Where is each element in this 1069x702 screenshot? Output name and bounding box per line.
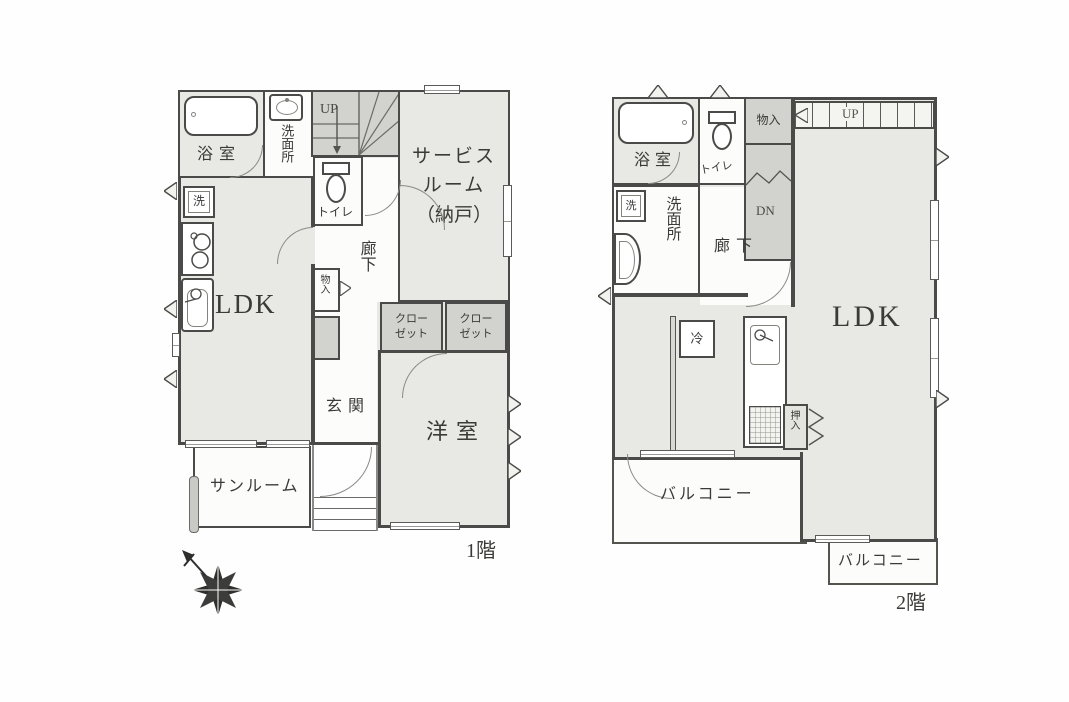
stove-2f <box>749 406 781 444</box>
vent-triangle-right-2f-1 <box>936 148 949 166</box>
fridge-label: 冷 <box>690 332 703 346</box>
fridge: 冷 <box>679 320 715 358</box>
washer-2f: 洗 <box>616 190 646 222</box>
bifold-door-icon <box>808 408 825 446</box>
window-right-2f-1 <box>930 200 939 280</box>
balcony-sub-label: バルコニー <box>838 553 923 570</box>
window-balcony-wall <box>640 450 735 458</box>
window-ldk-bottom-2f <box>815 535 870 543</box>
balcony-main-label: バルコニー <box>660 486 755 504</box>
washroom-label-2f: 洗面所 <box>664 196 681 241</box>
floor-plan-2f: トイレ 物入 DN UP 洗 冷 <box>0 0 1069 702</box>
hallway-label-2f: 廊下 <box>714 238 758 256</box>
storage-label-2f: 物入 <box>756 114 780 127</box>
floor2-label: 2階 <box>896 592 926 614</box>
futon-closet-label: 押入 <box>788 410 799 430</box>
kitchen-area-top-wall <box>612 293 748 297</box>
vent-triangle-top-2 <box>710 85 730 98</box>
storage-2f: 物入 <box>744 97 793 145</box>
stairs-up-arrow-2f <box>795 108 808 123</box>
vent-triangle-top-1 <box>648 85 668 98</box>
stairs-up-label-2f: UP <box>840 107 861 121</box>
window-right-2f-2 <box>930 318 939 398</box>
ldk-corridor-wall <box>791 97 795 307</box>
floorplan-canvas: UP トイレ サービス ルーム （納戸） 物入 クロー ゼット <box>0 0 1069 702</box>
counter-partition <box>670 316 676 456</box>
vent-triangle-right-2f-2 <box>936 390 949 408</box>
ldk-label-2f: LDK <box>832 300 903 333</box>
stairs-down-label: DN <box>754 204 777 218</box>
toilet-bowl-2f <box>712 123 732 150</box>
bathtub-drain-2f <box>682 120 687 125</box>
ldk-extension-2f <box>800 452 937 542</box>
vent-triangle-left-2f <box>598 287 611 305</box>
bathroom-label-2f: 浴室 <box>634 152 676 170</box>
staircase-up-2f <box>793 101 935 129</box>
